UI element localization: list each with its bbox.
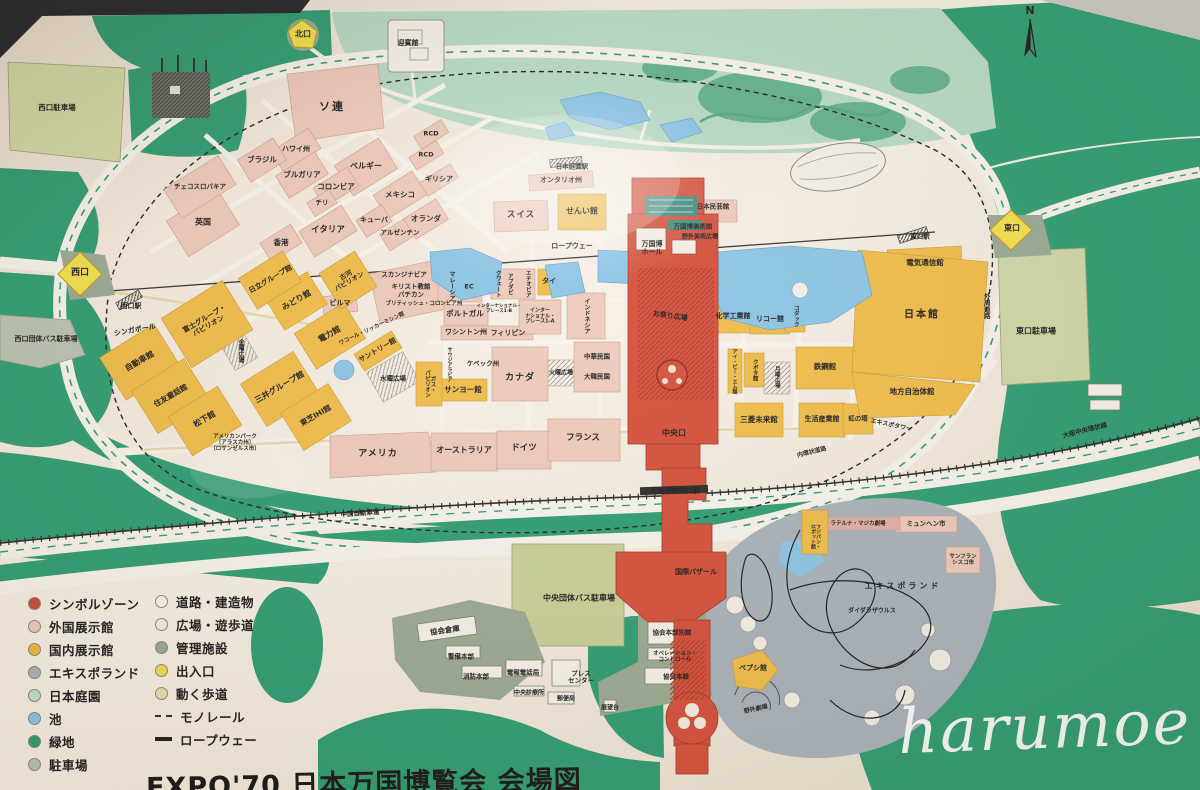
map-label: インドネシア xyxy=(583,296,589,336)
legend-swatch-dot xyxy=(155,641,168,654)
legend-item: 動く歩道 xyxy=(155,686,257,700)
map-label: サンヨー館 xyxy=(444,386,482,394)
map-label: アルゼンチン xyxy=(381,229,420,236)
legend-swatch-solid-line xyxy=(155,737,172,741)
map-label: 国際バザール xyxy=(675,569,717,577)
map-label: ブラジル xyxy=(247,156,277,164)
map-label: 協会本部別館 xyxy=(653,629,692,636)
map-label: EC xyxy=(464,283,473,290)
legend-swatch-dot xyxy=(155,595,168,608)
legend-label: 動く歩道 xyxy=(176,684,228,703)
map-label: 協会本館 xyxy=(663,673,689,680)
map-label: キューバ xyxy=(360,217,388,225)
legend-item: 駐車場 xyxy=(28,757,140,771)
legend-item: 外国展示館 xyxy=(28,619,140,633)
map-label: 中華民国 xyxy=(584,353,610,360)
map-label: プレス センター xyxy=(568,671,594,686)
legend-item: エキスポランド xyxy=(28,665,140,679)
compass-n-label: N xyxy=(1014,4,1046,17)
map-label: ケベック州 xyxy=(467,360,499,367)
map-label: 東口駅 xyxy=(910,233,930,240)
legend-label: モノレール xyxy=(180,707,245,726)
legend-item: モノレール xyxy=(155,709,257,723)
legend-swatch-dashed-line xyxy=(155,715,172,717)
compass-needle-icon xyxy=(1014,17,1046,63)
map-label: ブルガリア xyxy=(283,171,320,179)
legend-swatch-dot xyxy=(28,735,41,748)
map-label: 消防本部 xyxy=(463,673,489,680)
map-label: 北口 xyxy=(295,31,311,40)
legend-swatch-dot xyxy=(28,689,41,702)
map-label: ビルマ xyxy=(330,300,351,308)
map-label: フランス xyxy=(566,434,600,444)
map-label: 東口 xyxy=(1004,225,1020,234)
map-label: 火曜広場 xyxy=(549,371,573,378)
legend-item: 出入口 xyxy=(155,663,257,677)
map-label: 万国博 ホール xyxy=(642,241,663,257)
legend-item: ロープウェー xyxy=(155,732,257,746)
legend-label: 出入口 xyxy=(176,661,215,680)
map-label: クウェート xyxy=(494,269,500,299)
map-label: 万国博中央口駅 xyxy=(651,488,700,496)
map-label: 野外美術広場 xyxy=(682,235,718,242)
map-label: サンフラン シスコ市 xyxy=(949,554,976,566)
map-label: 月曜広場 xyxy=(773,362,779,392)
map-label: 日立グループ館 xyxy=(248,264,294,295)
map-label: コダック xyxy=(792,301,798,331)
legend-swatch-dot xyxy=(155,664,168,677)
map-label: RCD xyxy=(418,151,433,158)
map-label: 郵便局 xyxy=(557,697,575,704)
map-label: オンタリオ州 xyxy=(540,177,582,185)
map-label: イタリア xyxy=(311,226,345,236)
legend-swatch-dot xyxy=(28,758,41,771)
map-label: 展望台 xyxy=(601,706,619,713)
map-label: サントリー館 xyxy=(358,337,398,365)
map-label: エチオピア xyxy=(524,269,530,299)
map-label: ロープウェー xyxy=(551,243,593,251)
map-label: メキシコ xyxy=(385,191,415,199)
legend-swatch-dot xyxy=(155,618,168,631)
map-label: エキスポタワー xyxy=(870,418,912,433)
map-label: 東芝IHI館 xyxy=(299,404,333,428)
map-label: 化学工業館 xyxy=(716,313,751,321)
map-label: 金曜広場 xyxy=(237,338,243,364)
legend-item: 緑地 xyxy=(28,734,140,748)
map-label: 西口 xyxy=(71,268,89,278)
map-label: 中央団体バス駐車場 xyxy=(543,595,615,604)
map-label: ベルギー xyxy=(350,163,382,172)
legend-label: 国内展示館 xyxy=(49,640,114,659)
legend-item: 管理施設 xyxy=(155,640,257,654)
map-label: 外周道路 xyxy=(983,284,990,328)
map-label: スカンジナビア xyxy=(381,271,427,278)
legend-label: エキスポランド xyxy=(49,663,140,682)
legend-item: 広場・遊歩道 xyxy=(155,617,257,631)
map-label: 松下館 xyxy=(192,410,217,430)
map-label: ペプシ館 xyxy=(739,665,767,673)
legend-swatch-dot xyxy=(28,597,41,610)
legend-item: 国内展示館 xyxy=(28,642,140,656)
map-label: 自動車館 xyxy=(124,350,156,374)
map-label: ドイツ xyxy=(511,444,537,454)
legend-item: 日本庭園 xyxy=(28,688,140,702)
map-label: ワシントン州 xyxy=(445,329,487,337)
map-label: 中央口 xyxy=(662,430,686,439)
map-label: カナダ xyxy=(505,373,535,383)
map-label: チェコスロバキア xyxy=(174,183,226,190)
expo70-map-photo: { "title": "EXPO'70 日本万国博覧会 会場図", "water… xyxy=(0,0,1200,790)
map-label: ハワイ州 xyxy=(282,146,310,154)
legend-column-right: 道路・建造物広場・遊歩道管理施設出入口動く歩道モノレールロープウェー xyxy=(155,594,257,746)
map-label: 日本館 xyxy=(904,309,940,320)
map-label: 虹の塔 xyxy=(848,415,868,422)
map-label: 万国博美術館 xyxy=(674,223,713,230)
map-label: サウジアラビア xyxy=(447,347,452,381)
map-label: 中央診療所 xyxy=(514,691,544,698)
map-label: 協会倉庫 xyxy=(430,625,461,637)
legend-label: 日本庭園 xyxy=(49,686,101,705)
legend-label: 道路・建造物 xyxy=(176,592,254,611)
map-label: ガス・ パビリオン xyxy=(424,365,435,403)
map-label: 中国自動車道 xyxy=(340,509,379,519)
map-label: せんい館 xyxy=(566,208,598,217)
map-label: エキスポランド xyxy=(865,583,942,592)
map-label: コロンビア xyxy=(317,183,355,191)
map-label: アメリカンパーク 〔アラスカ州〕 〔ロサンゼルス市〕 xyxy=(210,434,260,452)
map-label: 電報電話局 xyxy=(507,669,540,676)
legend-swatch-dot xyxy=(28,712,41,725)
map-label: アブダビ xyxy=(506,271,512,297)
map-label: 大阪中央環状線 xyxy=(1062,422,1108,440)
map-label: 東口駐車場 xyxy=(1016,328,1056,337)
map-label: スイス xyxy=(507,211,535,221)
map-label: 鉄鋼館 xyxy=(814,363,837,371)
legend-column-left: シンボルゾーン外国展示館国内展示館エキスポランド日本庭園池緑地駐車場 xyxy=(28,596,140,771)
map-label: 住友童話館 xyxy=(153,383,190,409)
map-label: インター ナショナル・ プレース1-A xyxy=(525,309,555,326)
map-label: RCD xyxy=(423,130,438,137)
map-label: 日本庭園駅 xyxy=(556,163,589,170)
map-label: 西口駅 xyxy=(121,303,142,311)
map-label: みどり館 xyxy=(281,289,313,313)
map-label: 警備本部 xyxy=(448,653,474,660)
legend-label: ロープウェー xyxy=(180,730,257,749)
map-label: ミュンヘン市 xyxy=(907,520,946,527)
map-label: 英国 xyxy=(195,219,211,228)
map-label: オーストラリア xyxy=(436,447,492,456)
legend-label: 駐車場 xyxy=(49,755,88,774)
map-label: 迎賓館 xyxy=(398,40,419,48)
map-label: ソ連 xyxy=(319,101,345,113)
legend-swatch-dot xyxy=(28,643,41,656)
map-label: お祭り広場 xyxy=(652,311,688,324)
map-label: 内環状道路 xyxy=(797,446,828,460)
legend-swatch-dot xyxy=(28,666,41,679)
map-label: 地方自治体館 xyxy=(890,388,935,396)
legend-item: シンボルゾーン xyxy=(28,596,140,610)
map-label: 大韓民国 xyxy=(584,373,610,380)
map-label: 電気通信館 xyxy=(906,259,944,267)
legend-item: 道路・建造物 xyxy=(155,594,257,608)
map-label: 西口駐車場 xyxy=(38,104,76,112)
map-label: フジパン・ ロボット館 xyxy=(810,511,820,561)
legend-label: シンボルゾーン xyxy=(49,594,139,613)
map-label: チリ xyxy=(316,199,329,206)
map-label: 水曜広場 xyxy=(380,375,406,382)
map-label: ギリシア xyxy=(425,176,453,184)
map-label: オランダ xyxy=(411,215,441,223)
map-label: 三菱未来館 xyxy=(740,416,778,424)
legend-label: 緑地 xyxy=(49,732,75,751)
map-label: 富士グループ・ パビリオン xyxy=(182,304,232,342)
map-label: 香港 xyxy=(274,239,289,247)
map-label: 三井グループ館 xyxy=(254,370,307,406)
legend-label: 外国展示館 xyxy=(49,617,114,636)
map-label: リコー館 xyxy=(756,316,784,324)
map-label: アメリカ xyxy=(358,449,398,459)
map-label: マレーシア xyxy=(448,268,454,304)
map-label: シンガポール xyxy=(114,323,157,338)
legend-swatch-dot xyxy=(28,620,41,633)
map-label: バチカン xyxy=(398,291,424,298)
map-label: 西口団体バス駐車場 xyxy=(15,336,78,344)
watermark: harumoe xyxy=(897,685,1193,768)
legend-label: 池 xyxy=(49,709,62,728)
map-label: アイ・ビー・エム館 xyxy=(732,345,737,397)
map-label: 古河 パビリオン xyxy=(330,265,365,294)
legend-swatch-dot xyxy=(155,687,168,700)
map-label: 野外劇場 xyxy=(744,704,769,716)
compass: N xyxy=(1014,4,1046,67)
map-label: インターナショナル・ プレース1-B xyxy=(477,304,522,314)
map-label: ダイダラザウルス xyxy=(848,609,896,616)
map-label: フィリピン xyxy=(491,330,526,338)
map-label: クボタ館 xyxy=(751,355,757,385)
map-label: 生活産業館 xyxy=(805,416,840,424)
legend-label: 管理施設 xyxy=(176,638,228,657)
map-label: 日本民芸館 xyxy=(697,203,730,210)
map-label: ラテルナ・マジカ劇場 xyxy=(830,521,885,527)
legend-label: 広場・遊歩道 xyxy=(176,615,254,634)
legend-item: 池 xyxy=(28,711,140,725)
map-label: タイ xyxy=(542,278,556,286)
map-label: オペレーション・ コントロール xyxy=(653,651,697,663)
